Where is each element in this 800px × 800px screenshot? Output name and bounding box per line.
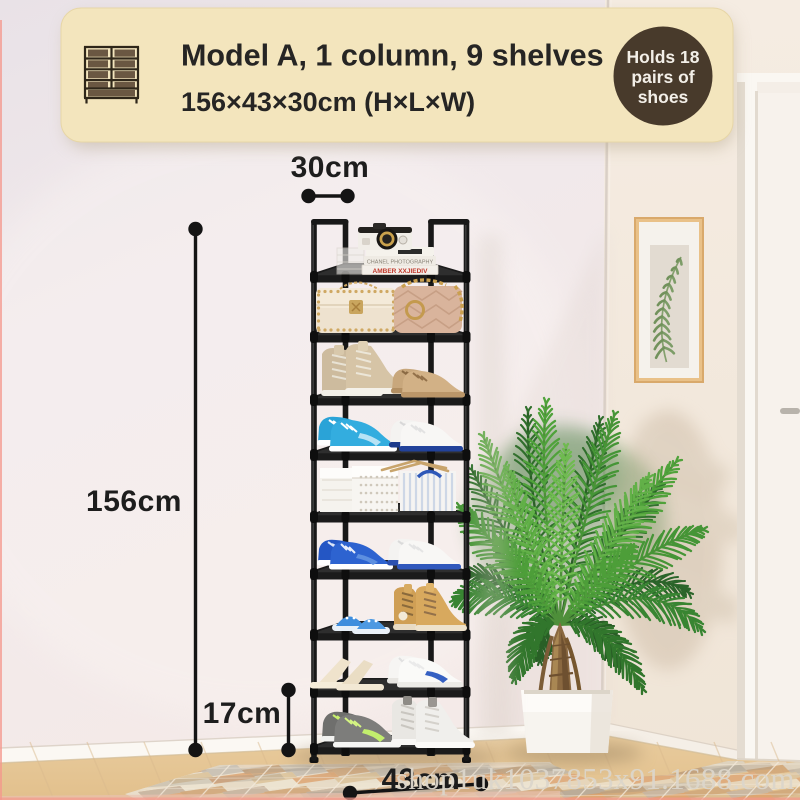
svg-text:Holds 18: Holds 18 bbox=[627, 47, 700, 67]
svg-text:17cm: 17cm bbox=[203, 697, 282, 730]
svg-text:156×43×30cm (H×L×W): 156×43×30cm (H×L×W) bbox=[181, 87, 475, 117]
svg-text:shoes: shoes bbox=[638, 87, 689, 107]
svg-text:shop1uk1037853x91.1688.com: shop1uk1037853x91.1688.com bbox=[396, 761, 795, 796]
svg-text:AMBER XXJIEDIV: AMBER XXJIEDIV bbox=[373, 268, 429, 275]
svg-text:30cm: 30cm bbox=[291, 151, 370, 184]
svg-text:pairs of: pairs of bbox=[631, 67, 694, 87]
svg-text:156cm: 156cm bbox=[86, 485, 182, 518]
svg-text:Model A, 1 column, 9 shelves: Model A, 1 column, 9 shelves bbox=[181, 39, 604, 73]
svg-text:CHANEL PHOTOGRAPHY: CHANEL PHOTOGRAPHY bbox=[367, 260, 434, 266]
